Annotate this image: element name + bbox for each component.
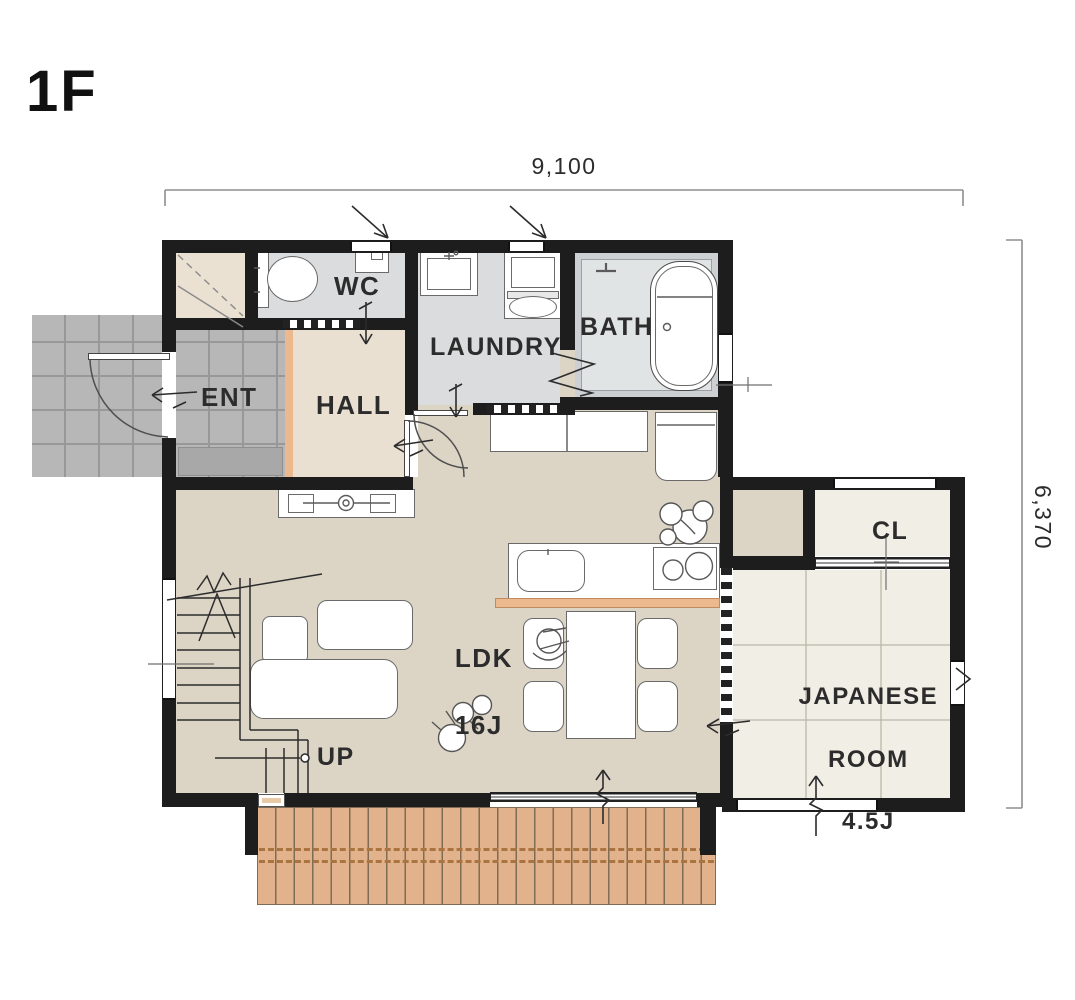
room-label-ent: ENT <box>201 381 258 415</box>
marker-lines <box>148 377 899 664</box>
laundry-faucet-dot <box>454 251 458 255</box>
up-start-dot <box>301 754 309 762</box>
page-title: 1F <box>26 58 98 125</box>
room-label-laundry: LAUNDRY <box>430 331 562 364</box>
wc-arrow <box>359 302 372 344</box>
stove-burner-small <box>663 560 683 580</box>
bathtub-drain <box>664 324 671 331</box>
window-vent-symbols <box>352 206 546 238</box>
room-label-wc: WC <box>334 270 380 304</box>
plant-icon <box>660 501 713 545</box>
laundry-faucet <box>444 252 454 260</box>
hall-arrow <box>394 439 433 456</box>
jr-slider-arrow <box>707 719 750 736</box>
room-label-ldk: LDK 16J <box>420 608 500 777</box>
dimension-top: 9,100 <box>514 152 614 182</box>
jr-name-1: JAPANESE <box>799 683 939 710</box>
laundry-arrow <box>449 384 462 417</box>
door-arcs <box>90 360 468 477</box>
closet-diagonal <box>178 255 243 327</box>
seated-person-icon <box>533 628 569 660</box>
room-label-bath: BATH <box>580 311 654 344</box>
jr-name-2: ROOM <box>828 746 909 773</box>
room-label-up: UP <box>317 741 355 774</box>
jr-right-window-chevron <box>956 668 970 690</box>
room-label-cl: CL <box>872 515 908 548</box>
stairs-break-line <box>167 574 322 600</box>
room-label-hall: HALL <box>316 389 391 423</box>
stairs-break-arrow <box>197 573 235 641</box>
ldk-size: 16J <box>455 710 503 740</box>
ent-arrow <box>152 388 197 408</box>
stove-burner-large <box>686 553 713 580</box>
dimension-right: 6,370 <box>1031 485 1057 549</box>
stairs <box>167 573 322 793</box>
jr-size: 4.5J <box>842 808 895 835</box>
shower-icon <box>596 263 616 272</box>
deck-door-arrow <box>596 770 610 824</box>
toilet-flush-handle <box>254 268 260 292</box>
ldk-name: LDK <box>455 643 513 673</box>
tv-board-knob <box>339 496 354 511</box>
floor-plan: 1F 9,100 6,370 WC LAUNDRY BATH ENT HALL … <box>0 0 1075 1000</box>
room-label-japanese-room: JAPANESE ROOM 4.5J <box>757 650 947 868</box>
